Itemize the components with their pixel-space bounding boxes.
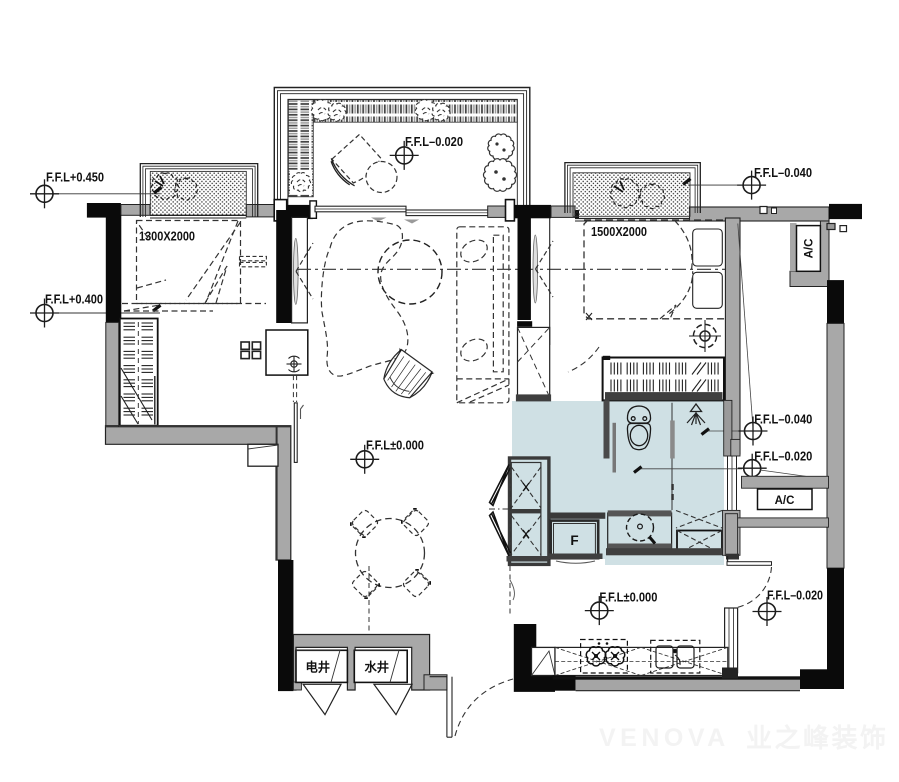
svg-text:F.F.L–0.020: F.F.L–0.020 <box>405 135 463 149</box>
svg-text:1300X2000: 1300X2000 <box>139 230 195 244</box>
svg-text:VENOVA: VENOVA <box>599 724 730 752</box>
svg-text:A/C: A/C <box>775 495 795 507</box>
svg-text:A/C: A/C <box>804 239 816 259</box>
svg-text:F.F.L–0.020: F.F.L–0.020 <box>754 450 812 464</box>
svg-text:水井: 水井 <box>365 660 390 675</box>
svg-text:业之峰装饰: 业之峰装饰 <box>746 723 889 753</box>
svg-text:电井: 电井 <box>306 660 331 675</box>
svg-text:F.F.L+0.450: F.F.L+0.450 <box>46 171 104 185</box>
svg-text:1500X2000: 1500X2000 <box>591 225 647 239</box>
svg-text:F.F.L+0.400: F.F.L+0.400 <box>45 293 103 307</box>
svg-text:F.F.L–0.040: F.F.L–0.040 <box>754 413 812 427</box>
svg-text:F.F.L–0.040: F.F.L–0.040 <box>754 166 812 180</box>
svg-text:F.F.L±0.000: F.F.L±0.000 <box>366 439 424 453</box>
svg-text:F.F.L±0.000: F.F.L±0.000 <box>599 591 657 605</box>
svg-text:F.F.L–0.020: F.F.L–0.020 <box>767 589 823 603</box>
svg-text:F: F <box>570 533 578 548</box>
